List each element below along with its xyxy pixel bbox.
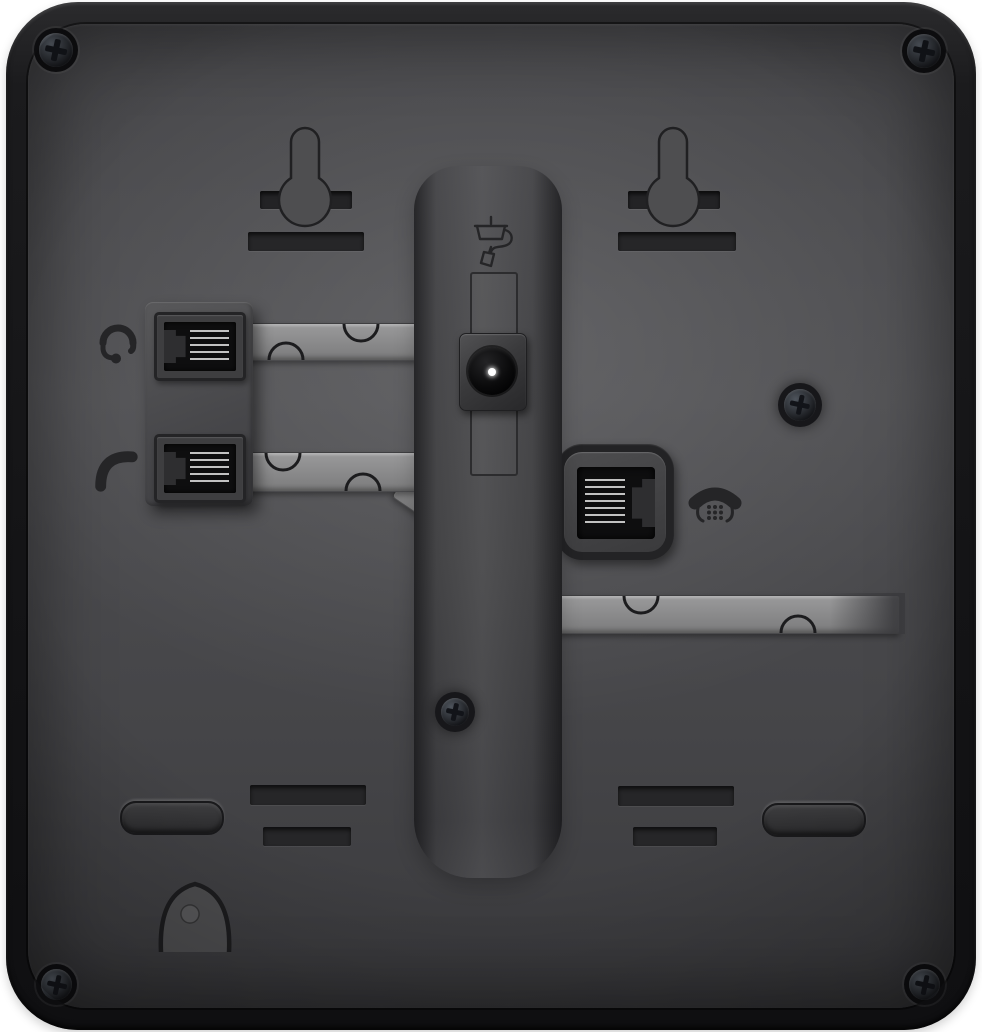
bottom-slot-right-2 [633,827,717,846]
foot-recess-left [120,801,224,835]
handset-jack-opening [164,444,236,493]
mount-bar-left [248,232,364,251]
wall-mount-keyhole-left [272,116,338,228]
cable-channel-right [540,595,900,634]
headset-jack [154,312,246,381]
line-port-opening [577,467,655,539]
dc-power-pin [488,368,496,376]
handset-icon [92,446,142,496]
foot-recess-right [762,803,866,837]
product-photo [0,0,982,1032]
jack-pins [190,452,229,485]
cable-channel-headset [240,323,432,361]
jack-pins [585,479,626,528]
cable-hook [152,874,238,952]
cable-channel-handset [240,452,434,492]
jack-keyway [164,330,186,363]
screw-top-left [39,33,73,67]
wall-mount-keyhole-right [640,116,706,228]
handset-jack [154,434,246,503]
screw-middle-right [784,389,816,421]
bottom-slot-left-1 [250,785,366,805]
desk-phone-icon [686,480,744,524]
mount-bar-right [618,232,736,251]
jack-keyway [632,479,655,528]
jack-keyway [164,452,186,485]
headset-jack-opening [164,322,236,371]
screw-bottom-right [909,969,940,1000]
power-adapter-icon [463,214,515,272]
phone-line-jack [556,444,674,560]
headset-icon [93,316,143,366]
bottom-slot-left-2 [263,827,351,846]
screw-center [441,698,469,726]
jack-pins [190,330,229,363]
bottom-slot-right-1 [618,786,734,806]
screw-bottom-left [41,969,72,1000]
screw-top-right [907,34,941,68]
